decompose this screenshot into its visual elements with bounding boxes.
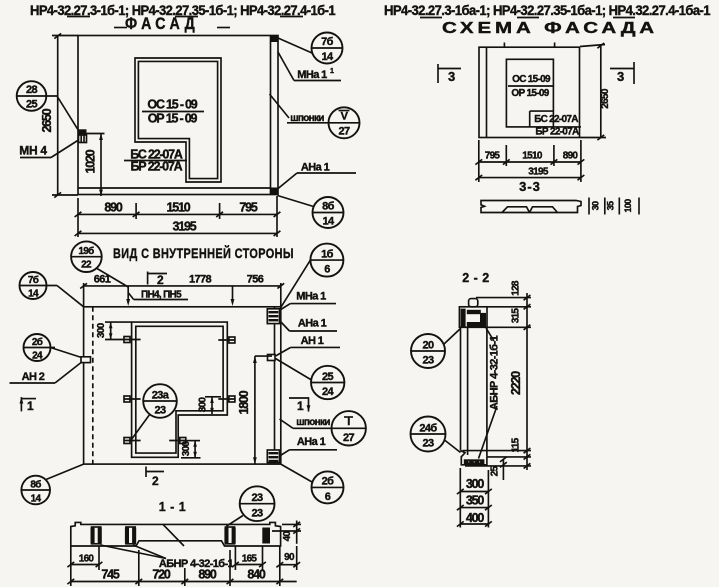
- svg-text:795: 795: [239, 201, 258, 215]
- svg-text:1б: 1б: [321, 249, 334, 261]
- svg-text:24: 24: [32, 351, 43, 362]
- svg-text:АБНР 4-32-1б-1: АБНР 4-32-1б-1: [159, 558, 234, 570]
- svg-text:14: 14: [28, 289, 39, 300]
- svg-text:АН 2: АН 2: [22, 371, 45, 383]
- svg-text:14: 14: [31, 494, 42, 505]
- svg-text:840: 840: [247, 568, 266, 582]
- svg-text:90: 90: [284, 552, 295, 563]
- svg-text:24б: 24б: [419, 423, 437, 435]
- svg-text:2220: 2220: [509, 371, 523, 395]
- svg-text:МНа 1: МНа 1: [296, 291, 326, 303]
- svg-text:27: 27: [338, 126, 350, 138]
- svg-text:2б: 2б: [32, 336, 43, 348]
- svg-text:795: 795: [485, 151, 501, 162]
- svg-text:28: 28: [26, 84, 38, 96]
- svg-text:ВИД С ВНУТРЕННЕЙ СТОРОНЫ: ВИД С ВНУТРЕННЕЙ СТОРОНЫ: [113, 244, 294, 261]
- svg-text:АНа 1: АНа 1: [298, 318, 327, 330]
- svg-text:1510: 1510: [522, 151, 543, 162]
- svg-text:300: 300: [181, 441, 192, 457]
- svg-text:1 - 1: 1 - 1: [159, 500, 187, 514]
- svg-text:ОС 15-09: ОС 15-09: [512, 74, 551, 85]
- svg-text:1: 1: [297, 399, 304, 413]
- svg-text:20: 20: [422, 340, 434, 352]
- svg-text:1510: 1510: [166, 201, 190, 215]
- svg-text:23: 23: [251, 508, 263, 520]
- svg-text:2650: 2650: [40, 108, 54, 132]
- svg-text:23: 23: [422, 355, 434, 367]
- svg-text:300: 300: [96, 322, 107, 338]
- svg-text:300: 300: [198, 397, 209, 413]
- svg-text:22: 22: [81, 260, 92, 271]
- svg-text:30: 30: [591, 201, 601, 210]
- svg-text:400: 400: [466, 511, 485, 525]
- svg-text:14: 14: [321, 51, 334, 63]
- svg-text:165: 165: [242, 554, 258, 565]
- svg-text:756: 756: [247, 274, 264, 286]
- svg-text:23а: 23а: [152, 390, 170, 402]
- svg-text:100: 100: [623, 199, 633, 213]
- svg-text:V: V: [341, 111, 349, 123]
- svg-text:2 - 2: 2 - 2: [462, 271, 490, 285]
- svg-text:160: 160: [79, 554, 95, 565]
- svg-text:19б: 19б: [78, 245, 94, 257]
- svg-text:1: 1: [330, 68, 334, 75]
- svg-text:23: 23: [251, 492, 263, 504]
- svg-text:БС 22-07А: БС 22-07А: [534, 114, 578, 125]
- svg-text:АБНР 4-32-1б-1: АБНР 4-32-1б-1: [489, 335, 501, 410]
- svg-text:7б: 7б: [321, 36, 334, 48]
- svg-text:ОР 15-09: ОР 15-09: [511, 88, 549, 99]
- svg-text:24: 24: [322, 386, 335, 398]
- svg-text:2б: 2б: [322, 476, 335, 488]
- svg-text:8б: 8б: [322, 201, 335, 213]
- svg-text:АНа 1: АНа 1: [297, 436, 326, 448]
- svg-text:35: 35: [606, 201, 616, 210]
- svg-text:6: 6: [325, 491, 331, 503]
- svg-text:1020: 1020: [84, 149, 98, 173]
- svg-text:1778: 1778: [189, 274, 212, 286]
- svg-text:890: 890: [104, 201, 123, 215]
- svg-text:МН 4: МН 4: [19, 144, 47, 158]
- svg-text:300: 300: [466, 477, 485, 491]
- svg-text:3: 3: [448, 69, 455, 84]
- svg-text:2: 2: [152, 474, 159, 488]
- svg-text:2650: 2650: [600, 88, 611, 109]
- svg-text:2: 2: [157, 273, 164, 287]
- svg-text:шпонки: шпонки: [296, 417, 330, 428]
- svg-text:350: 350: [466, 494, 485, 508]
- svg-text:БР 22-07А: БР 22-07А: [535, 127, 579, 138]
- svg-text:745: 745: [101, 568, 120, 582]
- svg-text:МНа 1: МНа 1: [297, 69, 327, 81]
- svg-text:НР4-32.27.3-1ба-1; НР4-32.27.3: НР4-32.27.3-1ба-1; НР4-32.27.35-1ба-1; Н…: [384, 3, 711, 18]
- svg-text:АН 1: АН 1: [301, 335, 324, 347]
- svg-text:14: 14: [322, 216, 335, 228]
- svg-text:1800: 1800: [237, 390, 251, 414]
- svg-text:БР 22-07А: БР 22-07А: [131, 160, 183, 174]
- svg-text:128: 128: [511, 280, 522, 296]
- svg-text:6: 6: [324, 264, 330, 276]
- svg-text:661: 661: [94, 274, 111, 286]
- svg-text:ФАСАД: ФАСАД: [125, 15, 199, 33]
- svg-text:ОР 15 - 09: ОР 15 - 09: [148, 112, 198, 126]
- svg-text:8б: 8б: [30, 479, 41, 491]
- svg-text:3: 3: [617, 69, 624, 84]
- svg-text:1: 1: [27, 399, 34, 413]
- svg-text:27: 27: [343, 432, 355, 444]
- svg-text:3195: 3195: [172, 220, 196, 234]
- svg-text:СХЕМА ФАСАДА: СХЕМА ФАСАДА: [442, 20, 658, 37]
- svg-text:АНа 1: АНа 1: [301, 162, 330, 174]
- svg-text:3-3: 3-3: [519, 179, 541, 194]
- svg-text:890: 890: [563, 151, 579, 162]
- svg-text:115: 115: [511, 437, 522, 452]
- svg-text:25: 25: [490, 466, 501, 477]
- svg-text:40: 40: [282, 531, 293, 542]
- svg-text:315: 315: [511, 308, 522, 324]
- svg-text:3195: 3195: [528, 167, 549, 178]
- svg-text:23: 23: [154, 405, 166, 417]
- svg-text:25: 25: [322, 371, 334, 383]
- svg-text:25: 25: [26, 99, 38, 111]
- svg-text:7б: 7б: [28, 274, 39, 286]
- svg-text:23: 23: [422, 438, 434, 450]
- svg-text:ОС 15 - 09: ОС 15 - 09: [147, 98, 197, 112]
